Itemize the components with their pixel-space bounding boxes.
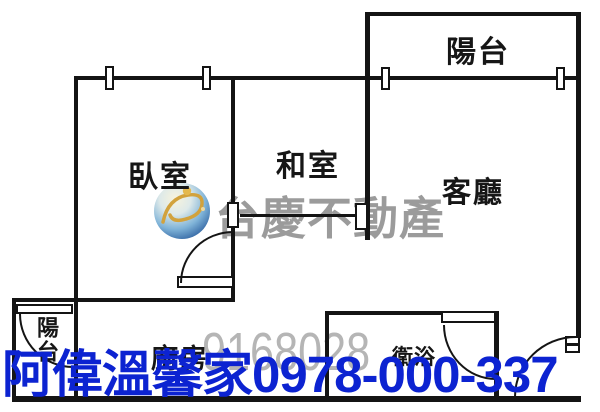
door-panel xyxy=(441,311,496,323)
wall xyxy=(12,298,235,302)
door-swing-arc xyxy=(443,325,496,380)
wall xyxy=(576,12,581,338)
door-panel xyxy=(16,304,73,314)
wall xyxy=(367,12,581,16)
door-swing-arc xyxy=(180,231,233,283)
room-label-bathroom: 衛浴 xyxy=(392,341,436,371)
room-label-living: 客廳 xyxy=(442,169,504,211)
room-label-balcony-bottom: 陽台 xyxy=(30,316,62,364)
door-swing-arc xyxy=(514,336,576,397)
plan-layer: 陽台 臥室 和室 客廳 廚房 衛浴 陽台 xyxy=(0,0,600,412)
wall xyxy=(74,76,78,402)
floor-plan: 台慶不動產 9168028 xyxy=(0,0,600,412)
sliding-partition xyxy=(240,214,362,217)
room-label-tatami: 和室 xyxy=(276,141,340,185)
door-jamb xyxy=(227,202,239,228)
window-marker xyxy=(202,66,211,90)
window-marker xyxy=(105,66,114,90)
wall xyxy=(325,311,329,398)
room-label-bedroom: 臥室 xyxy=(128,152,192,196)
room-label-balcony-top: 陽台 xyxy=(446,27,510,71)
wall xyxy=(74,76,581,80)
room-label-kitchen: 廚房 xyxy=(151,337,209,376)
window-marker xyxy=(381,67,390,90)
door-jamb xyxy=(355,203,368,230)
window-marker xyxy=(556,67,565,90)
wall xyxy=(325,311,445,315)
